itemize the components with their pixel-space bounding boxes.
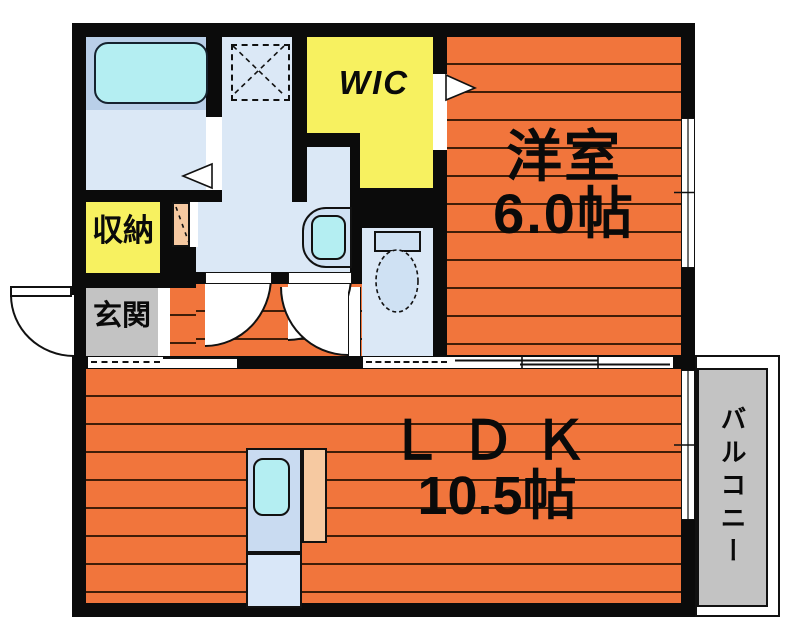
ldk-label: ＬＤＫ 10.5帖 [337,414,657,524]
bathtub-icon [94,42,208,104]
balcony-label: バルコニー [714,405,751,570]
vanity-sink-icon [311,215,346,260]
wall-opening [88,357,163,368]
folding-door-icon [172,202,190,247]
walk-in-closet-lower [360,133,433,188]
entrance-step [158,288,170,356]
hallway-floor [170,288,196,356]
floor-plan: バルコニー 洋室 6.0帖 ＬＤＫ 10.5帖 WIC 収納 玄関 [0,0,800,641]
bathroom-floor [86,110,206,190]
door-leaf [288,272,352,284]
bedroom-label: 洋室 6.0帖 [447,128,681,242]
storage-label: 収納 [86,215,160,247]
bedroom-name: 洋室 [447,128,681,185]
front-door-leaf [10,286,72,297]
ldk-name: ＬＤＫ [337,414,657,469]
bedroom-window-icon [681,118,695,268]
toilet-door-leaf [348,287,361,356]
wic-label: WIC [315,66,433,100]
balcony: バルコニー [697,368,768,607]
door-leaf [205,272,272,284]
vanity-nook [307,147,350,207]
sliding-door-opening [450,357,673,368]
balcony-window-icon [681,370,695,520]
entrance-label: 玄関 [86,302,158,332]
ldk-size: 10.5帖 [337,469,657,524]
washing-machine-space-icon [231,44,290,101]
front-door-swing-icon [10,295,74,357]
wall-opening [163,357,237,368]
folding-door-gap [190,202,198,247]
refrigerator-space [302,448,327,543]
kitchen-counter-lower [246,553,302,608]
bathroom-door-gap [206,117,222,190]
toilet-tank-icon [374,231,421,252]
wic-door-gap [433,74,447,150]
wall-opening [363,357,450,368]
kitchen-sink-icon [253,458,290,516]
bedroom-size: 6.0帖 [447,185,681,242]
